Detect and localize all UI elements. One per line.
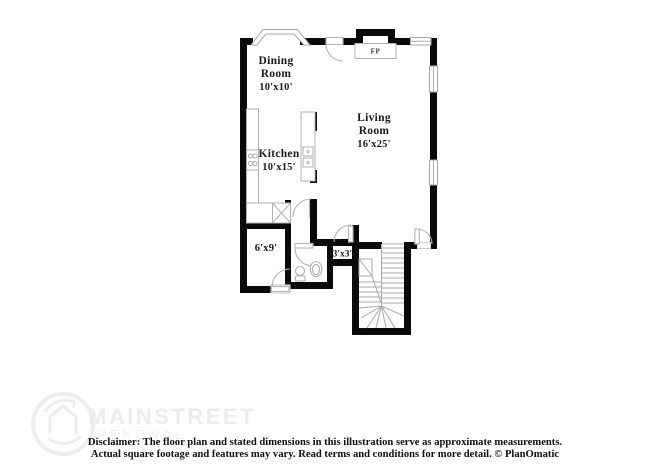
floor-plan-drawing: FP Dining Room 10'x10' Living Room (0, 0, 650, 473)
dining-room-dims: 10'x10' (259, 82, 293, 93)
bathroom-fixtures (296, 262, 322, 282)
sink (303, 158, 313, 167)
toilet-icon (296, 267, 306, 282)
brand-name: MAINSTREET (88, 406, 256, 428)
dining-room-label: Room (261, 68, 292, 80)
kitchen-dims: 10'x15' (262, 162, 296, 173)
dining-room-label: Dining (258, 55, 293, 67)
living-room-label: Room (359, 125, 390, 137)
closet-3x3-dims: 3'x3' (333, 249, 353, 259)
floor-plan-page: FP Dining Room 10'x10' Living Room (0, 0, 650, 473)
living-room-dims: 16'x25' (357, 139, 391, 150)
fireplace-label: FP (371, 48, 381, 56)
fireplace: FP (355, 44, 396, 59)
sink (303, 147, 313, 156)
living-room-label: Living (357, 112, 391, 124)
staircase (359, 244, 404, 328)
sink-icon (310, 262, 322, 277)
counter (247, 203, 273, 223)
kitchen-label: Kitchen (258, 148, 299, 160)
disclaimer-line: Disclaimer: The floor plan and stated di… (0, 437, 650, 449)
disclaimer: Disclaimer: The floor plan and stated di… (0, 437, 650, 461)
disclaimer-line: Actual square footage and features may v… (0, 449, 650, 461)
room-6x9-dims: 6'x9' (255, 243, 278, 254)
